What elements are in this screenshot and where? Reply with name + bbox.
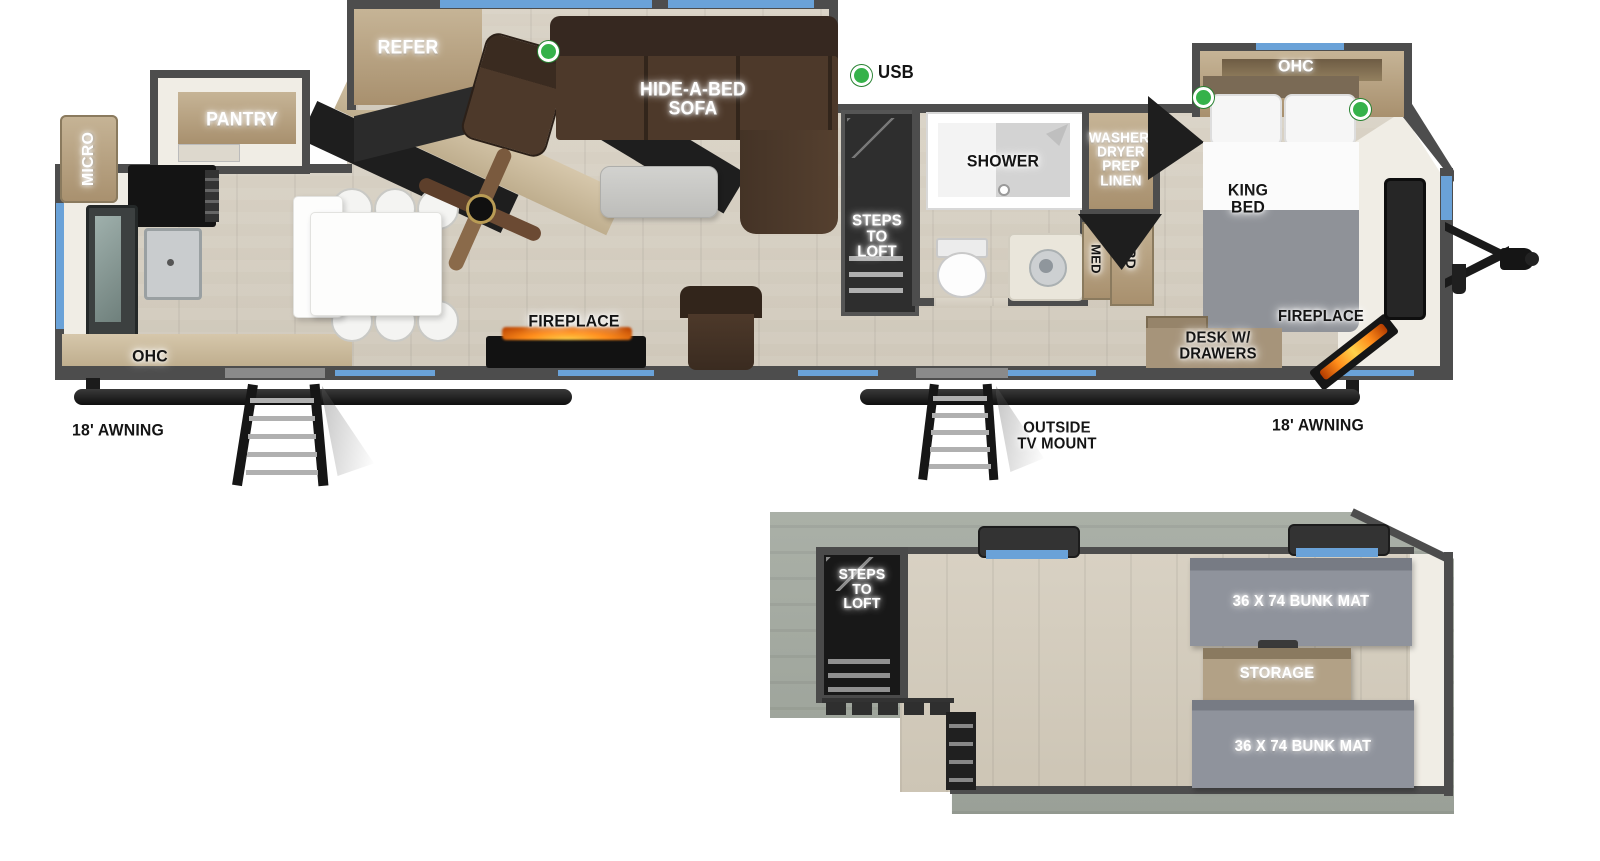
loft-railing-post xyxy=(852,702,872,715)
window-bottom-4 xyxy=(1008,370,1096,376)
loft-railing-post xyxy=(826,702,846,715)
bunk-rear-label: 36 X 74 BUNK MAT xyxy=(1235,739,1372,755)
loft-railing-post xyxy=(878,702,898,715)
ohc-bedroom-label: OHC xyxy=(1278,59,1314,76)
toilet xyxy=(937,252,987,298)
front-window xyxy=(1441,176,1452,220)
entry-steps-right xyxy=(922,384,998,482)
bedroom-slide-window xyxy=(1256,43,1344,50)
bath-door-gap xyxy=(934,298,1008,306)
usb-label: USB xyxy=(878,64,914,82)
bunk-front-label: 36 X 74 BUNK MAT xyxy=(1233,594,1370,610)
storage-label: STORAGE xyxy=(1240,666,1315,682)
loft-vent-window xyxy=(1296,548,1378,557)
bed-blanket xyxy=(1203,142,1359,212)
range-stove xyxy=(128,165,216,227)
kitchen-lower-cabinets xyxy=(62,334,352,366)
pantry-label: PANTRY xyxy=(206,112,278,131)
entry-door-right xyxy=(916,368,1008,378)
usb-port-bed-left-icon xyxy=(1193,87,1214,108)
tv-mount-label: OUTSIDE TV MOUNT xyxy=(1017,420,1096,451)
window-bottom-1 xyxy=(335,370,435,376)
loft-wall-right xyxy=(1444,552,1453,796)
usb-port-sofa-icon xyxy=(538,41,559,62)
refer-label: REFER xyxy=(378,40,439,59)
loft-steps-label: STEPS TO LOFT xyxy=(839,568,886,612)
tall-cabinet-glass xyxy=(95,216,121,322)
bath-vanity xyxy=(1008,233,1084,301)
hitch-ball-icon xyxy=(1525,252,1539,266)
window-bottom-3 xyxy=(798,370,878,376)
king-bed-label: KING BED xyxy=(1228,182,1268,215)
front-wardrobe-tv xyxy=(1384,178,1426,320)
awning-right-label: 18' AWNING xyxy=(1272,418,1364,435)
exterior-mask-slide xyxy=(1194,0,1410,43)
med-label: MED xyxy=(1089,244,1102,274)
recliner-chair xyxy=(680,286,762,370)
entry-steps-left xyxy=(238,384,328,488)
sink-drain xyxy=(167,259,174,266)
shower-label: SHOWER xyxy=(967,154,1039,171)
shower-drain xyxy=(998,184,1010,196)
desk-label: DESK W/ DRAWERS xyxy=(1179,330,1256,361)
loft-front-cap xyxy=(1410,554,1446,792)
exterior-mask-center xyxy=(838,0,1194,106)
stove-knobs xyxy=(205,170,219,222)
rv-floorplan: REFER HIDE-A-BED SOFA USB PANTRY MICRO O… xyxy=(0,0,1600,861)
slideout-window-1 xyxy=(440,0,652,8)
pantry-step xyxy=(178,144,240,162)
steps-main-label: STEPS TO LOFT xyxy=(852,213,902,260)
slideout-window-2 xyxy=(668,0,814,8)
kitchen-sink xyxy=(144,228,202,300)
usb-legend-icon xyxy=(851,65,872,86)
loft-railing-post xyxy=(904,702,924,715)
bed-pillow xyxy=(1284,94,1356,146)
washer-label: WASHER/ DRYER PREP LINEN xyxy=(1089,132,1153,189)
loft-plan: STEPS TO LOFT 36 X 74 BUNK MAT STORAGE 3… xyxy=(770,512,1454,814)
bath-wall-left xyxy=(912,110,920,306)
rear-window xyxy=(56,203,64,329)
usb-port-bed-right-icon xyxy=(1350,99,1371,120)
bed-pillow xyxy=(1210,94,1282,146)
window-bottom-2 xyxy=(558,370,654,376)
awning-left-label: 18' AWNING xyxy=(72,423,164,440)
bath-sink xyxy=(1039,259,1053,273)
ohc-kitchen-label: OHC xyxy=(132,349,168,366)
micro-label: MICRO xyxy=(81,132,97,186)
loft-lower-stairs xyxy=(946,712,976,790)
fireplace-bedroom-label: FIREPLACE xyxy=(1278,309,1364,325)
exterior-mask-right xyxy=(1410,0,1600,108)
ceiling-fan-icon xyxy=(410,140,550,280)
loft-vent-window xyxy=(986,550,1068,559)
fireplace-living-label: FIREPLACE xyxy=(528,314,619,331)
ottoman-bench xyxy=(600,166,718,218)
sofa-chaise xyxy=(740,130,838,234)
tall-cabinet xyxy=(86,205,138,341)
tv-console xyxy=(486,336,646,368)
sofa-label: HIDE-A-BED SOFA xyxy=(640,81,746,118)
tongue-jack xyxy=(1452,264,1466,294)
entry-door-left xyxy=(225,368,325,378)
